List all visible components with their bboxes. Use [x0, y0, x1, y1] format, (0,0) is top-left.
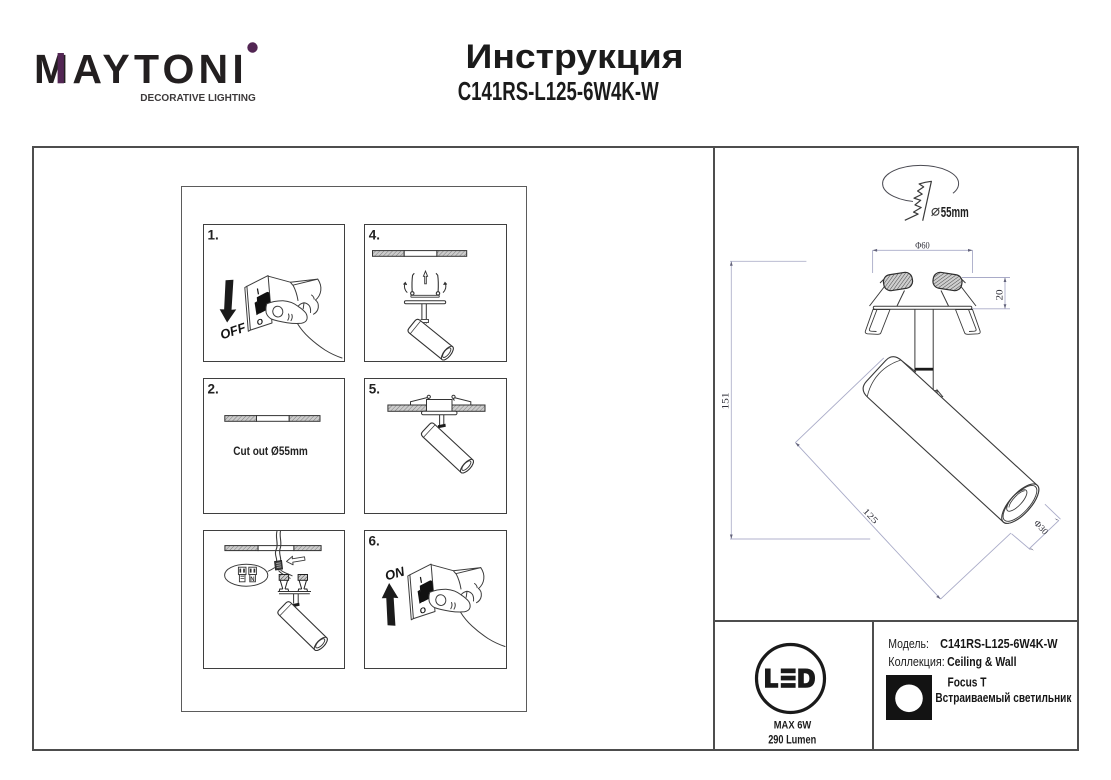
svg-text:Φ30: Φ30 [1032, 518, 1051, 537]
svg-text:1.: 1. [207, 227, 218, 242]
svg-text:Модель:: Модель: [888, 637, 929, 651]
svg-text:290 Lumen: 290 Lumen [768, 735, 816, 747]
svg-text:Инструкция: Инструкция [466, 38, 684, 76]
svg-text:N: N [250, 577, 254, 583]
svg-text:Φ60: Φ60 [915, 241, 930, 251]
svg-text:5.: 5. [369, 381, 380, 396]
svg-text:C141RS-L125-6W4K-W: C141RS-L125-6W4K-W [940, 636, 1058, 651]
svg-text:Cut out Ø55mm: Cut out Ø55mm [233, 446, 308, 458]
svg-text:151: 151 [721, 393, 731, 410]
svg-text:6.: 6. [369, 533, 380, 548]
svg-text:55mm: 55mm [941, 204, 969, 221]
svg-text:MAYTONI: MAYTONI [34, 46, 248, 92]
svg-text:MAX 6W: MAX 6W [774, 720, 812, 732]
svg-text:20: 20 [994, 289, 1004, 301]
svg-text:4.: 4. [369, 227, 380, 242]
svg-text:C141RS-L125-6W4K-W: C141RS-L125-6W4K-W [458, 76, 659, 106]
svg-text:Focus T: Focus T [948, 674, 987, 689]
svg-text:Коллекция:: Коллекция: [888, 655, 944, 669]
svg-text:DECORATIVE LIGHTING: DECORATIVE LIGHTING [140, 92, 256, 104]
svg-text:Ceiling & Wall: Ceiling & Wall [947, 654, 1016, 669]
svg-text:2.: 2. [207, 381, 218, 396]
svg-text:Встраиваемый светильник: Встраиваемый светильник [935, 690, 1071, 705]
